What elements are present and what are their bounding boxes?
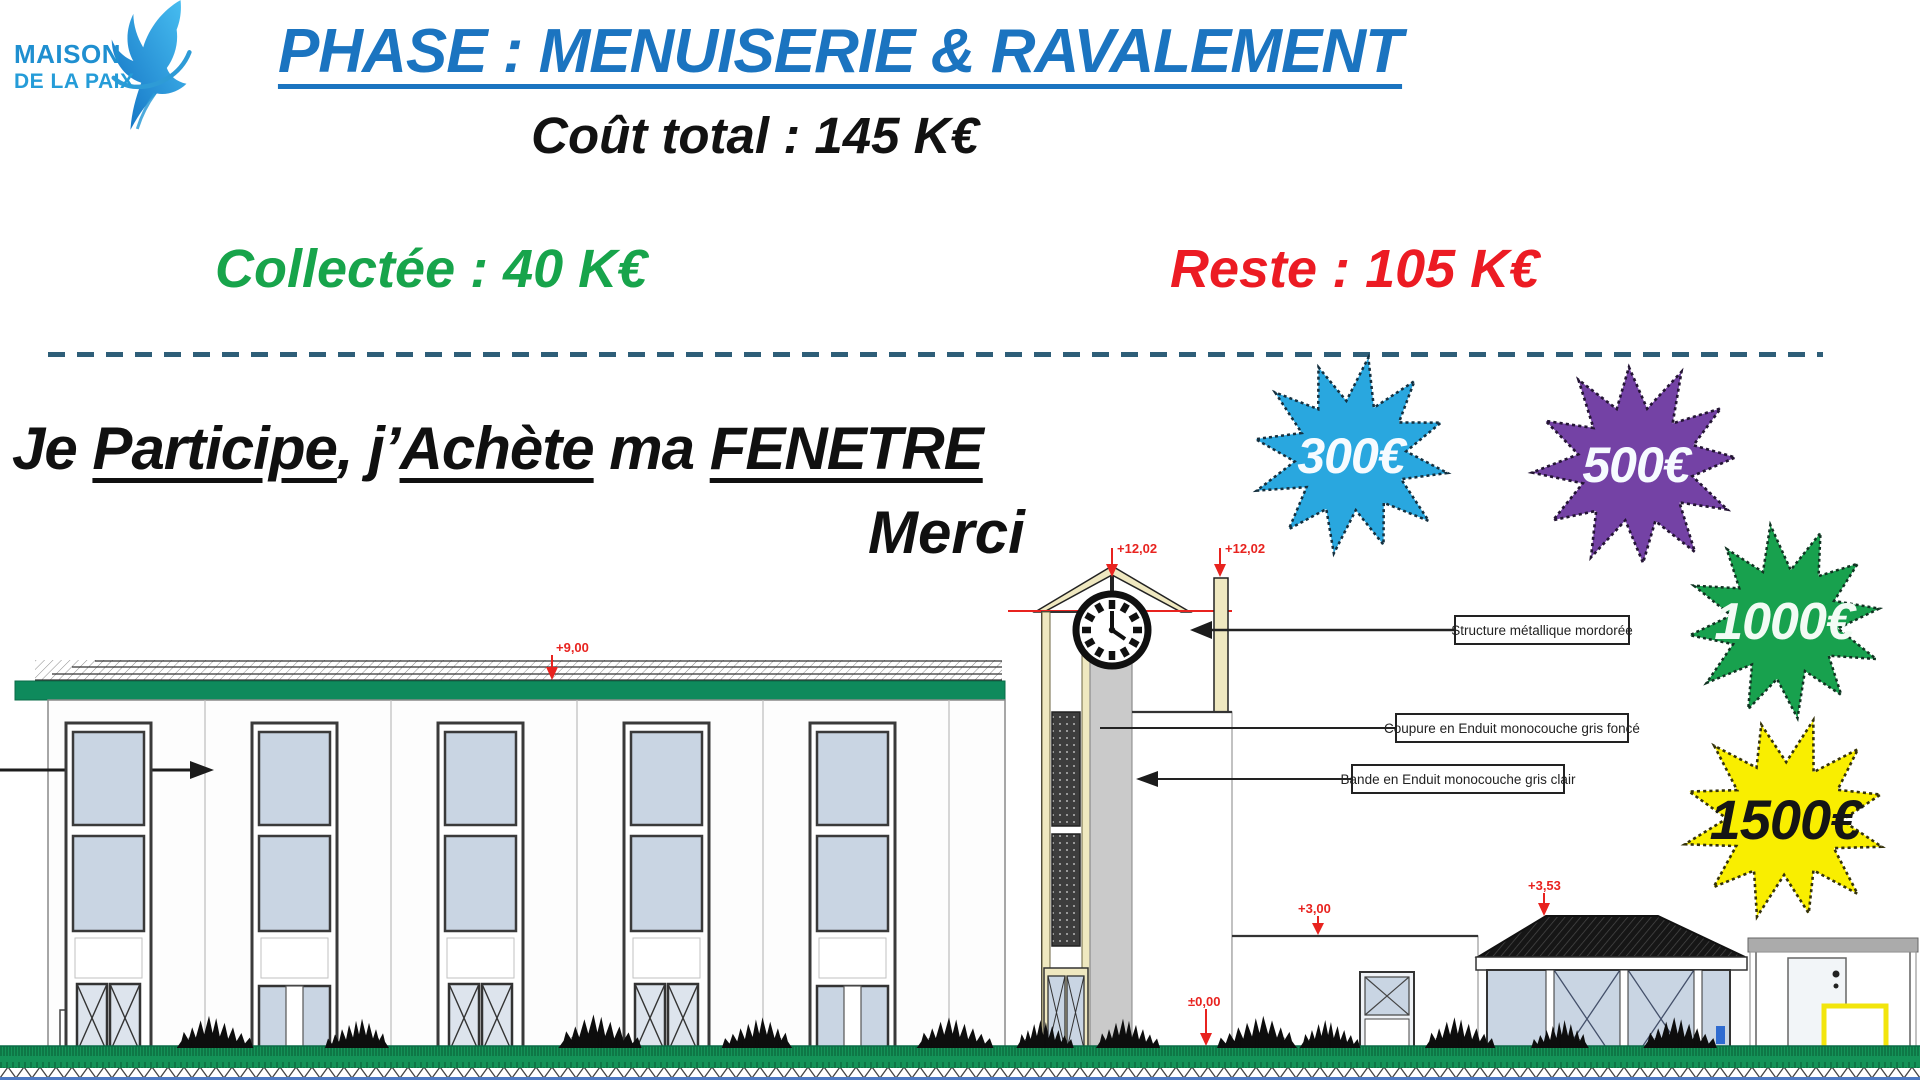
logo-wordmark: MAISON DE LA PAIX bbox=[14, 40, 135, 94]
grey-band bbox=[1090, 645, 1132, 1053]
level-ridge-a: +12,02 bbox=[1117, 541, 1157, 556]
appeal-fenetre: FENETRE bbox=[710, 415, 983, 482]
level-annex: +3,00 bbox=[1298, 901, 1331, 916]
logo-line1: MAISON bbox=[14, 40, 135, 70]
donation-star-1000: 1000€ bbox=[1652, 518, 1916, 726]
callout-bande: Bande en Enduit monocouche gris clair bbox=[1341, 772, 1576, 787]
clock-face bbox=[1076, 594, 1148, 666]
ground bbox=[0, 1046, 1920, 1080]
logo-line2: DE LA PAIX bbox=[14, 70, 135, 94]
grass-strip bbox=[0, 1046, 1920, 1068]
yellow-highlight-box bbox=[1824, 1006, 1886, 1052]
fundraising-poster: MAISON DE LA PAIX PHASE : MENUISERIE & R… bbox=[0, 0, 1920, 1080]
donation-star-1500: 1500€ bbox=[1648, 710, 1920, 928]
leader-arrow-icon bbox=[1190, 621, 1212, 639]
total-cost-text: Coût total : 145 K€ bbox=[280, 106, 1230, 165]
collected-amount-text: Collectée : 40 K€ bbox=[215, 238, 647, 300]
window-bay bbox=[252, 723, 337, 1053]
appeal-part: Je bbox=[12, 415, 92, 482]
participation-appeal: Je Participe, j’Achète ma FENETRE bbox=[12, 414, 983, 483]
thanks-text: Merci bbox=[868, 498, 1025, 567]
green-roof-strip bbox=[15, 681, 1005, 700]
donation-amount: 1000€ bbox=[1714, 592, 1854, 652]
level-porch: +3,53 bbox=[1528, 878, 1561, 893]
appeal-part: ma bbox=[594, 415, 710, 482]
donation-amount: 500€ bbox=[1582, 436, 1689, 494]
window-bay bbox=[810, 723, 895, 1053]
callout-structure: Structure métallique mordorée bbox=[1451, 623, 1633, 638]
level-ground: ±0,00 bbox=[1188, 994, 1220, 1009]
roof-band bbox=[15, 660, 1005, 700]
remaining-amount-text: Reste : 105 K€ bbox=[1170, 238, 1539, 300]
window-bay bbox=[624, 723, 709, 1053]
appeal-participe: Participe bbox=[92, 415, 336, 482]
level-roof: +9,00 bbox=[556, 640, 589, 655]
donation-amount: 1500€ bbox=[1710, 787, 1861, 852]
window-bay bbox=[66, 723, 151, 1053]
window-bay bbox=[438, 723, 523, 1053]
appeal-achete: Achète bbox=[400, 415, 594, 482]
donation-amount: 300€ bbox=[1297, 427, 1404, 485]
annex-walls bbox=[1132, 712, 1478, 1053]
right-canopy bbox=[1716, 938, 1918, 1052]
callout-coupure: Coupure en Enduit monocouche gris foncé bbox=[1384, 721, 1640, 736]
donation-star-300: 300€ bbox=[1226, 350, 1476, 562]
appeal-part: , j’ bbox=[337, 415, 400, 482]
phase-title: PHASE : MENUISERIE & RAVALEMENT bbox=[180, 16, 1500, 87]
